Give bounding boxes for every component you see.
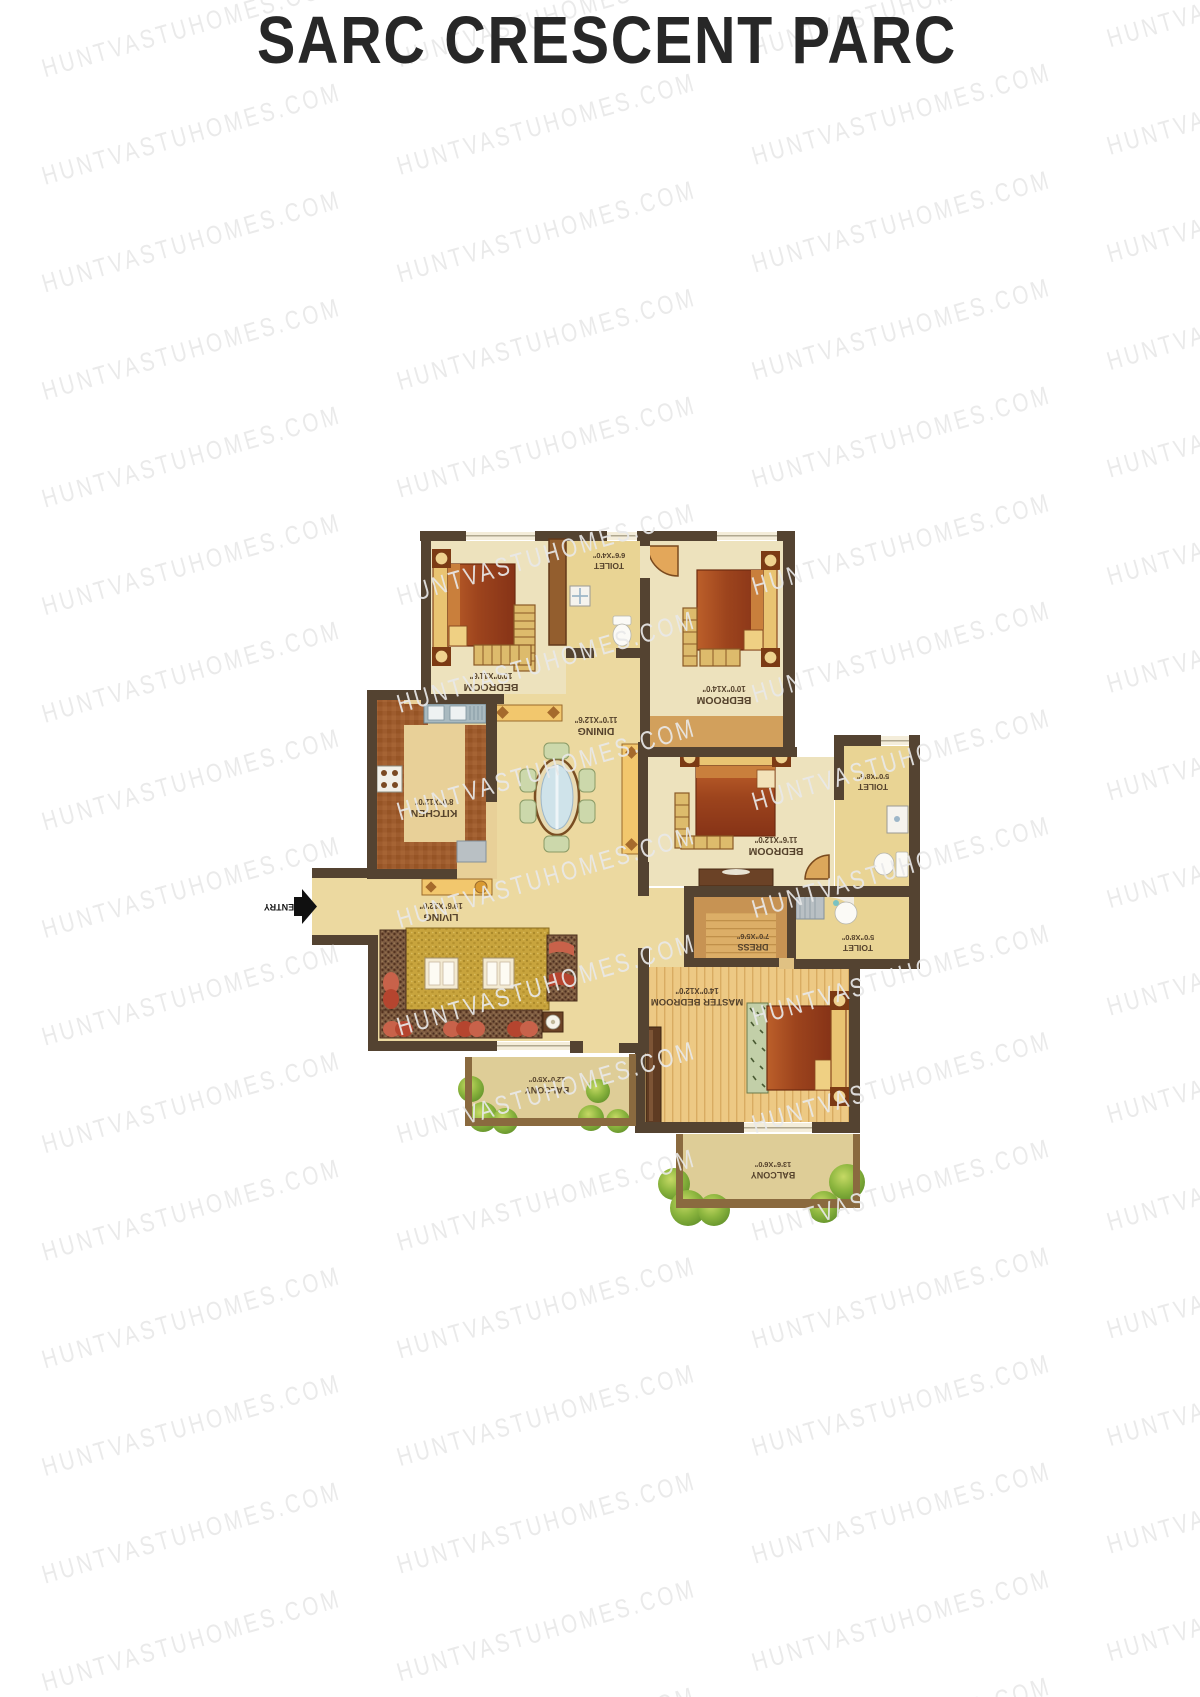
svg-text:14'0"X12'0": 14'0"X12'0" — [675, 986, 719, 995]
svg-text:10'0"X14'0": 10'0"X14'0" — [702, 684, 746, 693]
svg-text:11'6"X12'0": 11'6"X12'0" — [754, 835, 797, 844]
svg-text:13'6"X6'0": 13'6"X6'0" — [754, 1160, 791, 1169]
svg-text:TOILET: TOILET — [593, 561, 624, 571]
svg-text:MASTER BEDROOM: MASTER BEDROOM — [651, 996, 743, 1007]
svg-text:BEDROOM: BEDROOM — [696, 694, 751, 706]
svg-text:7'0"X5'6": 7'0"X5'6" — [736, 932, 769, 941]
svg-text:5'0"X8'0": 5'0"X8'0" — [841, 933, 874, 942]
svg-text:11'0"X12'6": 11'0"X12'6" — [574, 715, 617, 724]
svg-text:SARC CRESCENT PARC: SARC CRESCENT PARC — [257, 3, 957, 78]
svg-text:BEDROOM: BEDROOM — [748, 845, 803, 857]
svg-text:TOILET: TOILET — [842, 943, 873, 953]
svg-text:ENTRY: ENTRY — [264, 902, 294, 912]
svg-text:BALCONY: BALCONY — [751, 1170, 796, 1180]
svg-text:DRESS: DRESS — [737, 942, 768, 952]
